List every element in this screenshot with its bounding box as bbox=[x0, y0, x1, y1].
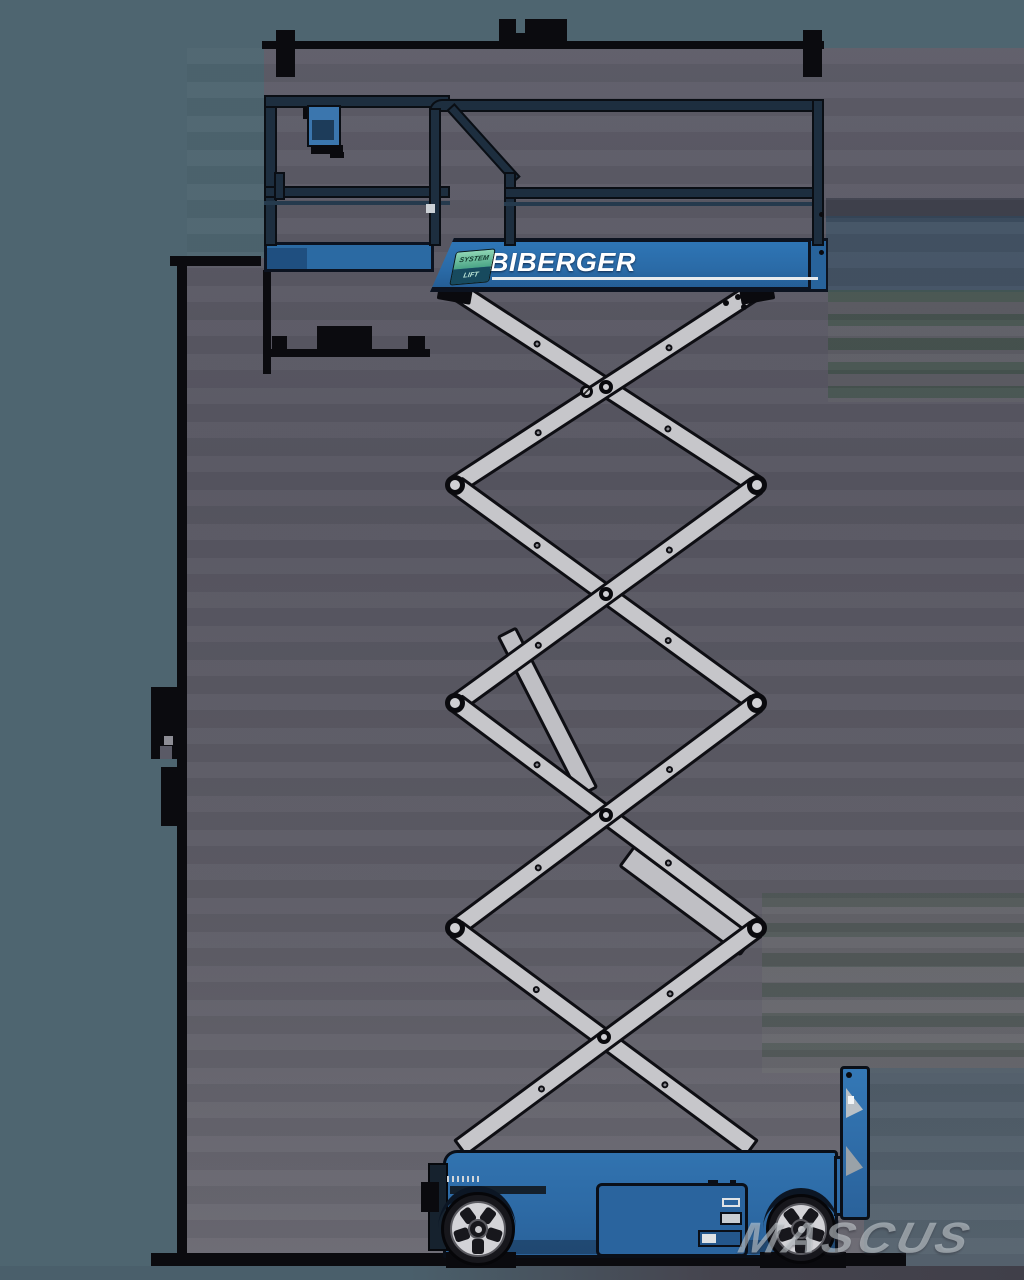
left-height-dimension-line bbox=[177, 256, 187, 1266]
guardrail-mid-rail-right bbox=[504, 187, 824, 199]
rivet bbox=[735, 294, 741, 300]
joint-pin bbox=[445, 918, 465, 938]
top-dimension-marker-notch bbox=[516, 19, 525, 33]
rivet bbox=[534, 863, 544, 873]
rivet bbox=[723, 300, 729, 306]
scissor-lift-illustration: BIBERGER SYSTEM LIFT bbox=[0, 0, 1024, 1280]
guardrail-latch-detail bbox=[426, 204, 435, 213]
background-banding-overlay bbox=[187, 48, 1024, 1266]
rivet bbox=[663, 858, 673, 868]
top-dimension-marker-block bbox=[499, 19, 567, 46]
rivet bbox=[664, 343, 674, 353]
guardrail-top-rail-right bbox=[429, 99, 824, 112]
rivet bbox=[663, 424, 673, 434]
wheel-hub bbox=[468, 1219, 488, 1239]
platform-deck-end-cap bbox=[808, 241, 826, 289]
guardrail-right-post bbox=[812, 99, 824, 246]
rivet bbox=[536, 1084, 546, 1094]
center-pivot-pin bbox=[597, 1030, 611, 1044]
center-pivot-pin bbox=[599, 380, 613, 394]
left-dimension-marker-dot bbox=[164, 736, 173, 745]
rivet bbox=[819, 212, 824, 217]
platform-extension-corner bbox=[267, 248, 307, 269]
left-dimension-marker-lower bbox=[161, 767, 187, 826]
rivet bbox=[741, 304, 747, 310]
guardrail-front-post bbox=[504, 172, 516, 246]
joint-pin bbox=[747, 475, 767, 495]
system-lift-badge: SYSTEM LIFT bbox=[449, 248, 496, 285]
platform-step-tick-right bbox=[408, 336, 425, 357]
left-dimension-marker-notch bbox=[160, 746, 172, 759]
entry-post-reflector bbox=[848, 1096, 854, 1104]
rivet bbox=[531, 985, 541, 995]
guardrail-left-post bbox=[264, 95, 277, 246]
mascus-watermark: MASCUS bbox=[734, 1214, 978, 1264]
control-box-bracket-foot bbox=[330, 152, 344, 158]
rivet bbox=[664, 545, 674, 555]
platform-step-block bbox=[317, 326, 372, 357]
wheel-spoke-hole bbox=[472, 1239, 484, 1254]
guardrail-mid-rail-right-lower bbox=[504, 202, 824, 206]
guardrail-mid-rail-left-lower bbox=[264, 201, 450, 205]
wheel-left bbox=[441, 1192, 515, 1266]
door-hinge-mark bbox=[708, 1180, 718, 1185]
joint-pin bbox=[747, 693, 767, 713]
wheel-rim bbox=[450, 1201, 506, 1257]
door-hinge-mark bbox=[730, 1180, 736, 1185]
entry-post bbox=[840, 1066, 870, 1220]
joint-pin bbox=[445, 693, 465, 713]
rivet bbox=[534, 640, 544, 650]
center-pivot-pin bbox=[599, 587, 613, 601]
center-pivot-screw bbox=[580, 385, 593, 398]
top-dimension-right-tick bbox=[803, 30, 822, 77]
rivet bbox=[663, 636, 673, 646]
entry-post-hole bbox=[846, 1072, 852, 1078]
guardrail-bracket bbox=[274, 172, 285, 200]
door-handle bbox=[720, 1212, 742, 1225]
background-bottom-strip bbox=[0, 1266, 1024, 1280]
rivet bbox=[532, 339, 542, 349]
rivet bbox=[533, 760, 543, 770]
wheel-hub-dot bbox=[475, 1226, 482, 1233]
control-box-panel bbox=[312, 120, 334, 140]
rivet bbox=[819, 250, 824, 255]
door-handle-outline bbox=[722, 1198, 740, 1207]
platform-step-tick-left bbox=[272, 336, 287, 357]
rivet bbox=[533, 428, 543, 438]
rivet bbox=[665, 989, 675, 999]
guardrail-top-rail-left bbox=[264, 95, 450, 108]
door-latch-plate bbox=[702, 1234, 716, 1243]
brand-logo-text: BIBERGER bbox=[489, 247, 697, 278]
joint-pin bbox=[747, 918, 767, 938]
top-dimension-left-tick bbox=[276, 30, 295, 77]
guardrail-mid-rail-left bbox=[264, 186, 450, 198]
chassis-label-marks bbox=[447, 1176, 481, 1182]
rivet bbox=[660, 1080, 670, 1090]
rivet bbox=[664, 765, 674, 775]
guardrail-mid-post bbox=[429, 108, 441, 246]
chassis-front-block bbox=[421, 1182, 439, 1212]
joint-pin bbox=[445, 475, 465, 495]
rivet bbox=[533, 541, 543, 551]
center-pivot-pin bbox=[599, 808, 613, 822]
platform-step-vertical-line bbox=[263, 270, 271, 374]
